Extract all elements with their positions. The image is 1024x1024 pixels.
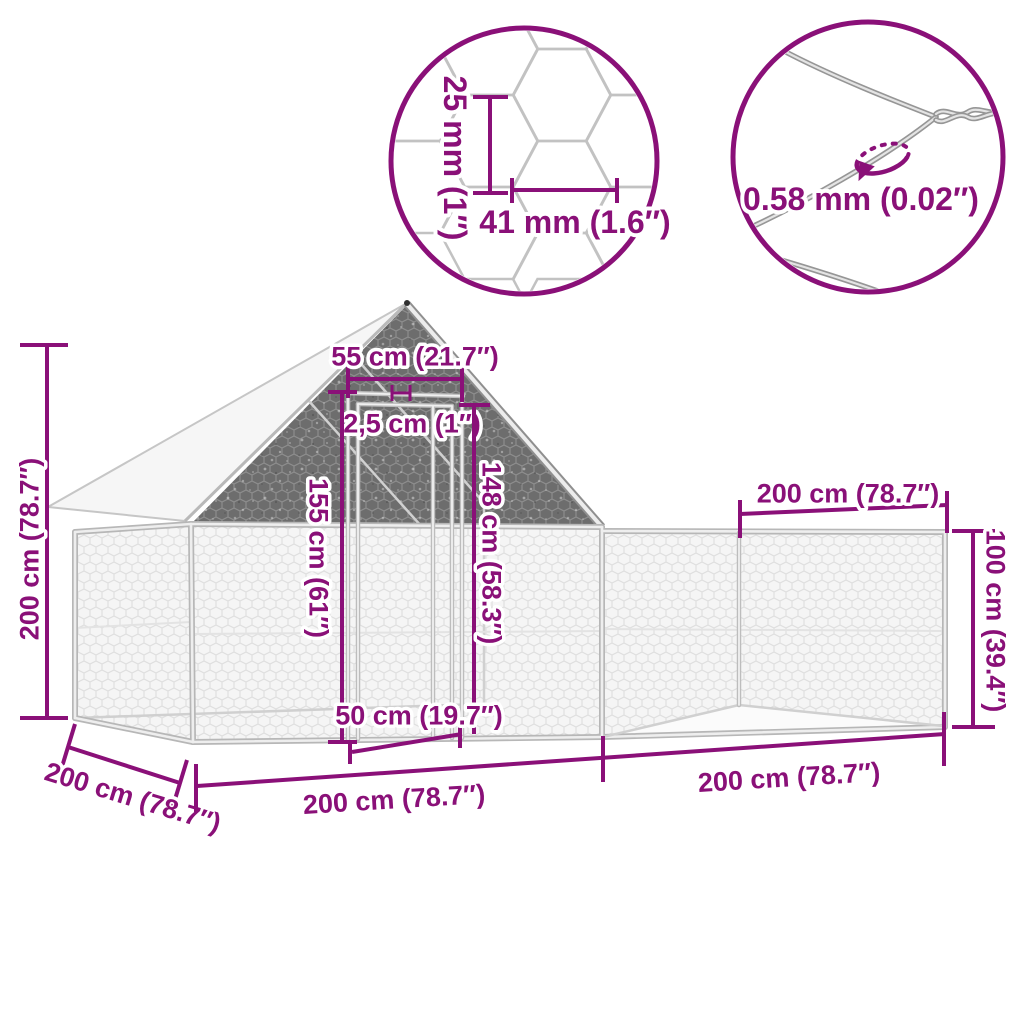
run-section-length-label: 200 cm (78.7″) — [697, 757, 881, 798]
coop-section-length-label: 200 cm (78.7″) — [302, 779, 486, 820]
mesh-cell-height-label: 25 mm (1″) — [437, 76, 473, 241]
mesh-detail-circle — [391, 28, 657, 294]
wire-thickness-label: 0.58 mm (0.02″) — [743, 181, 979, 217]
wall-height-label: 148 cm (58.3″) — [477, 462, 507, 645]
door-width-label: 50 cm (19.7″) — [335, 700, 503, 730]
coop-left-wall-mesh — [75, 524, 193, 742]
inset-wire-detail: 0.58 mm (0.02″) — [722, 22, 1005, 301]
ridge-width-label: 55 cm (21.7″) — [331, 341, 499, 371]
run-height-label: 100 cm (39.4″) — [981, 530, 1011, 713]
total-height-label: 200 cm (78.7″) — [14, 458, 44, 641]
inset-mesh-detail: 25 mm (1″) 41 mm (1.6″) — [367, 0, 757, 371]
ridge-peak-bolt — [404, 300, 410, 306]
diagram-canvas: 25 mm (1″) 41 mm (1.6″) 0.58 mm (0.02″) — [0, 0, 1024, 1024]
product-dimension-diagram: 25 mm (1″) 41 mm (1.6″) 0.58 mm (0.02″) — [0, 0, 1024, 1024]
mesh-cell-width-label: 41 mm (1.6″) — [479, 204, 670, 240]
wire-detail-circle — [733, 22, 1003, 292]
door-height-label: 155 cm (61″) — [304, 478, 334, 638]
frame-tube-label: 2,5 cm (1″) — [343, 408, 481, 438]
run-wall-mesh — [602, 531, 945, 737]
run-top-label: 200 cm (78.7″) — [757, 478, 940, 508]
